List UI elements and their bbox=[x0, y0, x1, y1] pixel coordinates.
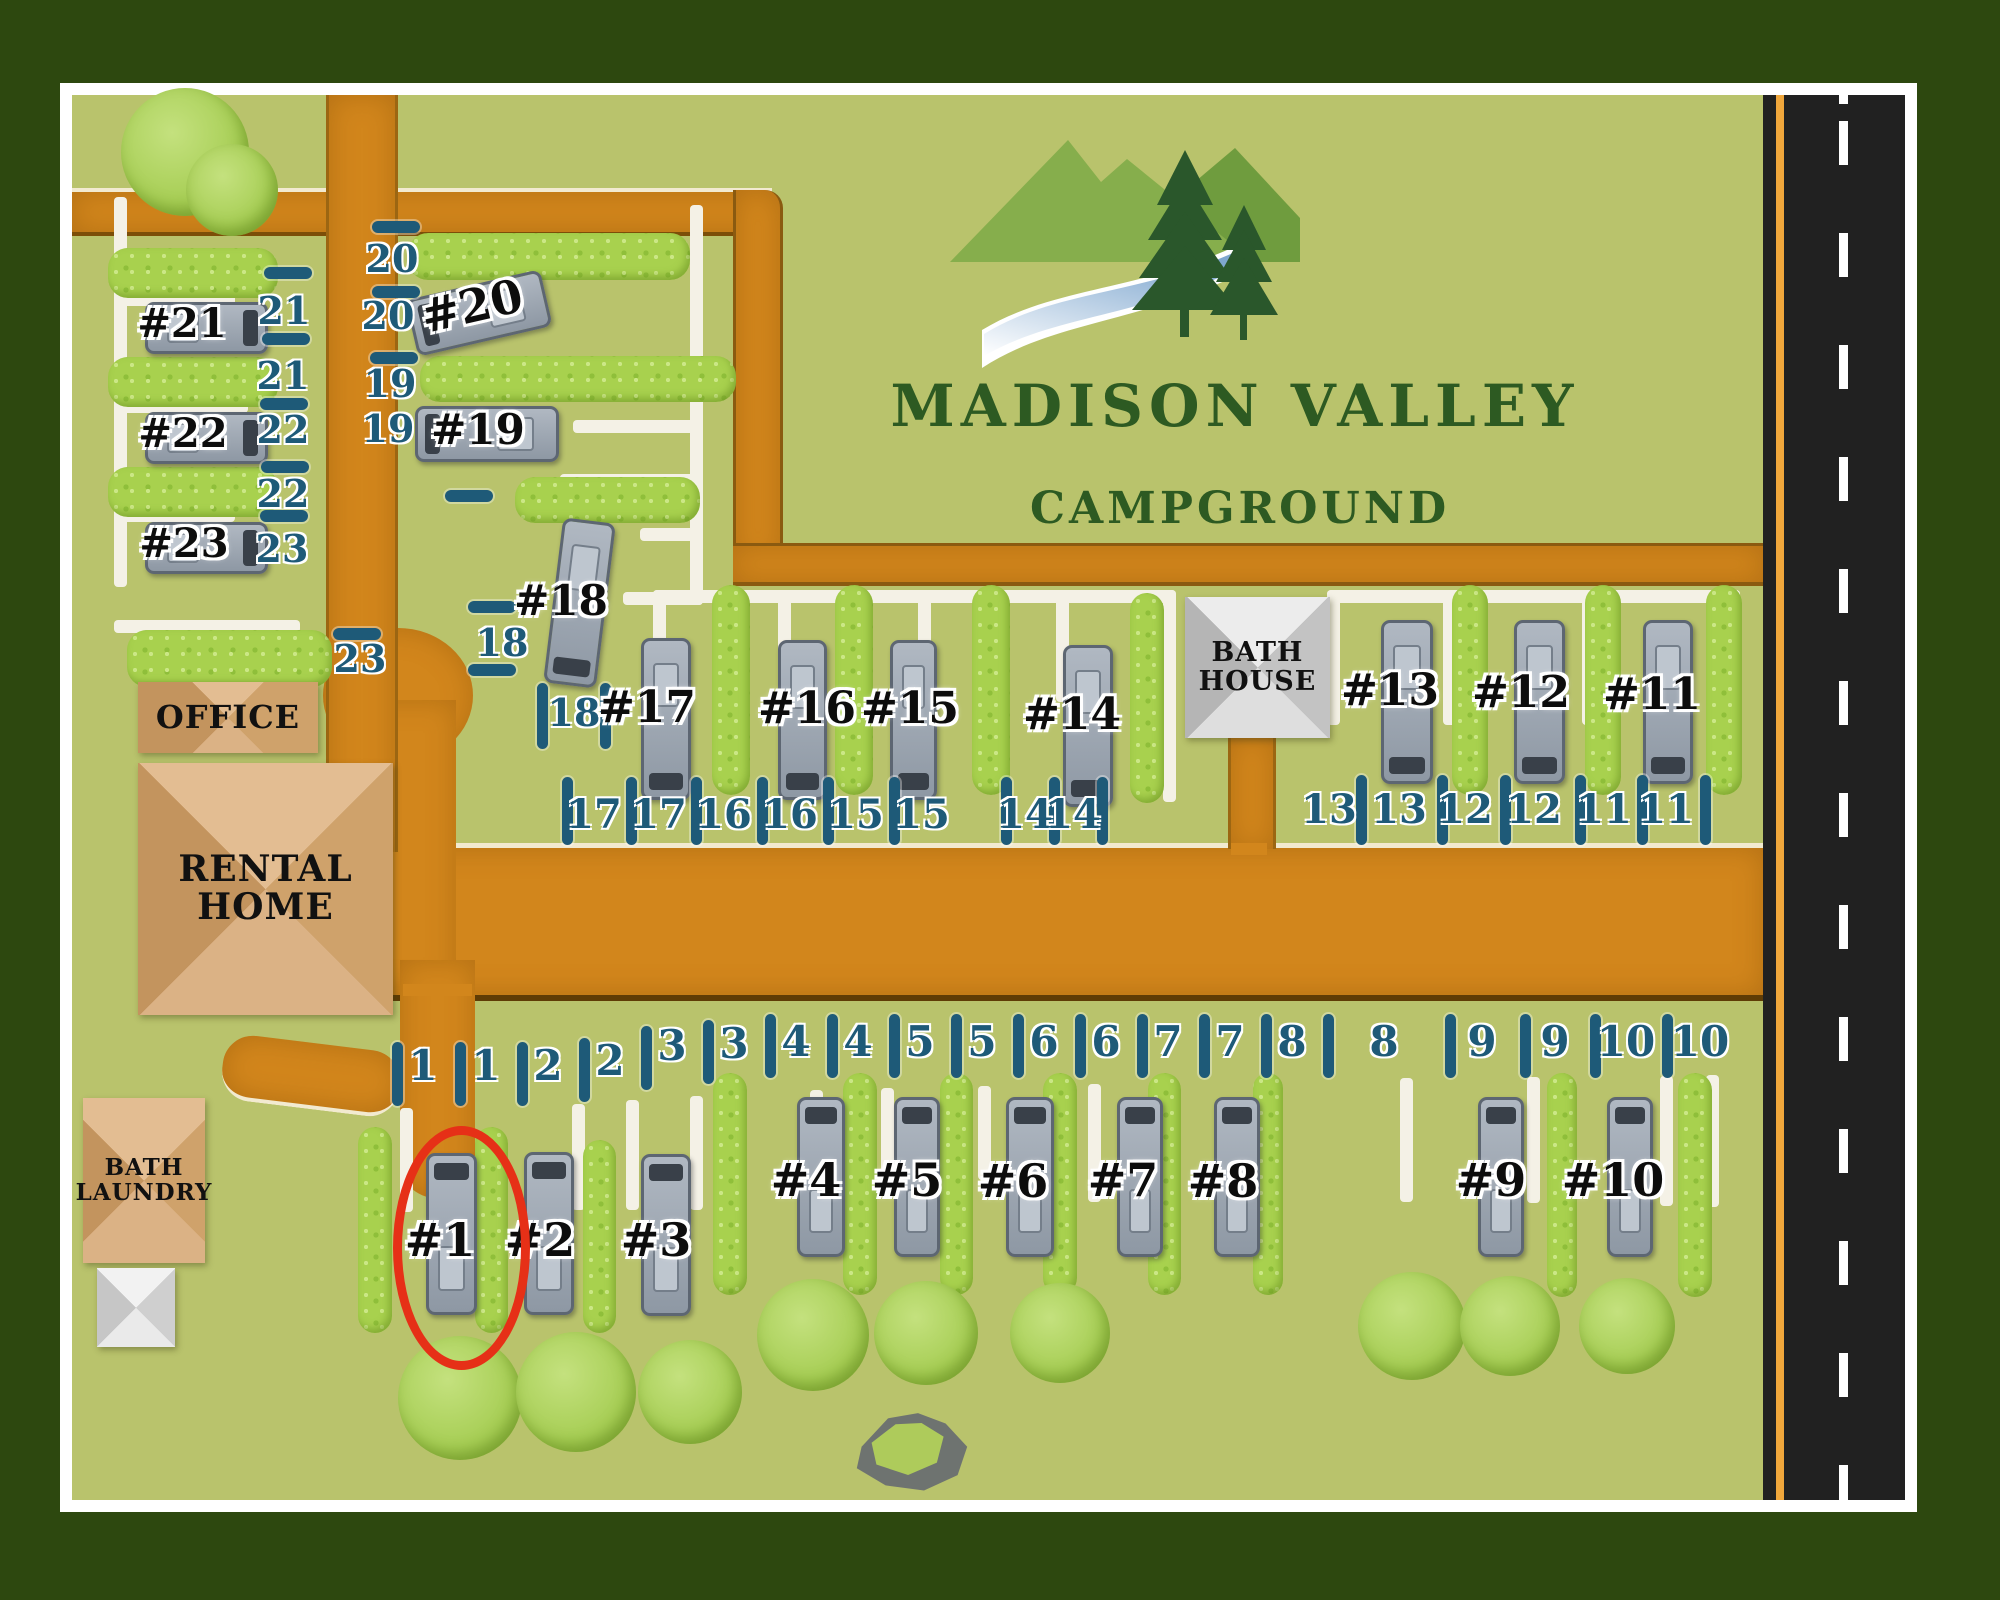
site-label-8: #8 bbox=[1153, 1154, 1293, 1209]
site-boundary-number: 18 bbox=[447, 621, 557, 665]
rv-windshield bbox=[786, 773, 819, 790]
road-bottom-horizontal bbox=[380, 843, 1763, 1001]
rv-windshield bbox=[1222, 1107, 1252, 1124]
rv-windshield bbox=[902, 1107, 932, 1124]
boundary-tick bbox=[372, 221, 420, 233]
road-loop-vertical bbox=[733, 190, 783, 562]
driveway-line bbox=[690, 1096, 703, 1210]
highway-road bbox=[1763, 95, 1905, 1500]
site-label-22: #22 bbox=[113, 410, 253, 458]
rv-windshield bbox=[805, 1107, 837, 1124]
driveway-line bbox=[626, 1100, 639, 1210]
rv-windshield bbox=[532, 1162, 566, 1179]
driveway-line bbox=[1400, 1078, 1413, 1202]
highway-center-dashes bbox=[1839, 95, 1848, 1500]
site-label-13: #13 bbox=[1320, 665, 1460, 718]
logo-subtitle: CAMPGROUND bbox=[1030, 483, 1430, 534]
rv-windshield bbox=[552, 656, 591, 677]
site-label-18: #18 bbox=[491, 576, 631, 626]
site-boundary-number: 15 bbox=[867, 792, 977, 838]
site-label-3: #3 bbox=[586, 1213, 726, 1268]
building-office: OFFICE bbox=[138, 682, 318, 753]
driveway-line bbox=[1163, 590, 1176, 802]
hedge bbox=[1678, 1073, 1712, 1297]
building-rental-home: RENTAL HOME bbox=[138, 763, 393, 1015]
boundary-tick bbox=[445, 490, 493, 502]
rv-windshield bbox=[1014, 1107, 1046, 1124]
site-label-14: #14 bbox=[1002, 689, 1142, 742]
tree bbox=[638, 1340, 742, 1444]
hedge bbox=[127, 630, 332, 687]
road-loop-horizontal bbox=[733, 543, 1763, 586]
site-label-9: #9 bbox=[1421, 1153, 1561, 1208]
rv-windshield bbox=[1389, 757, 1425, 774]
logo-graphic bbox=[900, 100, 1300, 370]
highway-edge-line bbox=[1776, 95, 1784, 1500]
site-label-23: #23 bbox=[114, 520, 254, 568]
road-bathhouse-connector bbox=[1228, 737, 1276, 849]
driveway-line bbox=[690, 205, 703, 605]
tree bbox=[874, 1281, 978, 1385]
hedge bbox=[515, 477, 700, 523]
tree bbox=[516, 1332, 636, 1452]
driveway-line bbox=[573, 420, 703, 433]
site-label-17: #17 bbox=[577, 682, 717, 735]
tree bbox=[1010, 1283, 1110, 1383]
road-seam-patch bbox=[403, 984, 472, 996]
tree bbox=[1460, 1276, 1560, 1376]
rv-windshield bbox=[1615, 1107, 1645, 1124]
site-boundary-number: 11 bbox=[1611, 787, 1721, 833]
site-label-16: #16 bbox=[737, 683, 877, 736]
rv-windshield bbox=[1486, 1107, 1516, 1124]
site-boundary-number: 22 bbox=[228, 472, 338, 516]
rv-windshield bbox=[898, 773, 929, 790]
tree bbox=[1358, 1272, 1466, 1380]
building-bath-house: BATH HOUSE bbox=[1185, 597, 1330, 738]
building-outbuilding bbox=[97, 1268, 175, 1347]
boundary-tick bbox=[264, 267, 312, 279]
site-boundary-number: 10 bbox=[1645, 1018, 1755, 1066]
building-bath-laundry: BATH LAUNDRY bbox=[83, 1098, 205, 1263]
rv-windshield bbox=[1522, 757, 1557, 774]
rv-windshield bbox=[649, 773, 683, 790]
site-label-21: #21 bbox=[112, 300, 252, 348]
logo-title: MADISON VALLEY bbox=[835, 372, 1635, 440]
driveway-line bbox=[640, 528, 703, 541]
site-label-19: #19 bbox=[408, 405, 548, 455]
tree bbox=[1579, 1278, 1675, 1374]
site-highlight-ellipse bbox=[393, 1126, 530, 1370]
boundary-tick bbox=[468, 664, 516, 676]
site-boundary-number: 21 bbox=[228, 354, 338, 398]
site-boundary-number: 19 bbox=[335, 362, 445, 406]
tree bbox=[186, 144, 278, 236]
tree bbox=[757, 1279, 869, 1391]
site-boundary-number: 20 bbox=[337, 237, 447, 281]
site-boundary-number: 23 bbox=[305, 637, 415, 681]
rv-windshield bbox=[649, 1164, 683, 1181]
campground-map: MADISON VALLEY CAMPGROUND OFFICERENTAL H… bbox=[0, 0, 2000, 1600]
site-boundary-number: 8 bbox=[1329, 1018, 1439, 1066]
rv-windshield bbox=[1125, 1107, 1155, 1124]
driveway-line bbox=[1327, 590, 1740, 603]
road-seam-patch bbox=[1231, 843, 1267, 855]
hedge bbox=[408, 233, 690, 280]
boundary-tick bbox=[262, 333, 310, 345]
site-label-11: #11 bbox=[1582, 669, 1722, 722]
hedge bbox=[420, 356, 736, 402]
site-label-10: #10 bbox=[1543, 1153, 1683, 1208]
site-boundary-number: 14 bbox=[1018, 792, 1128, 838]
site-label-12: #12 bbox=[1451, 667, 1591, 720]
rv-windshield bbox=[1651, 757, 1685, 774]
